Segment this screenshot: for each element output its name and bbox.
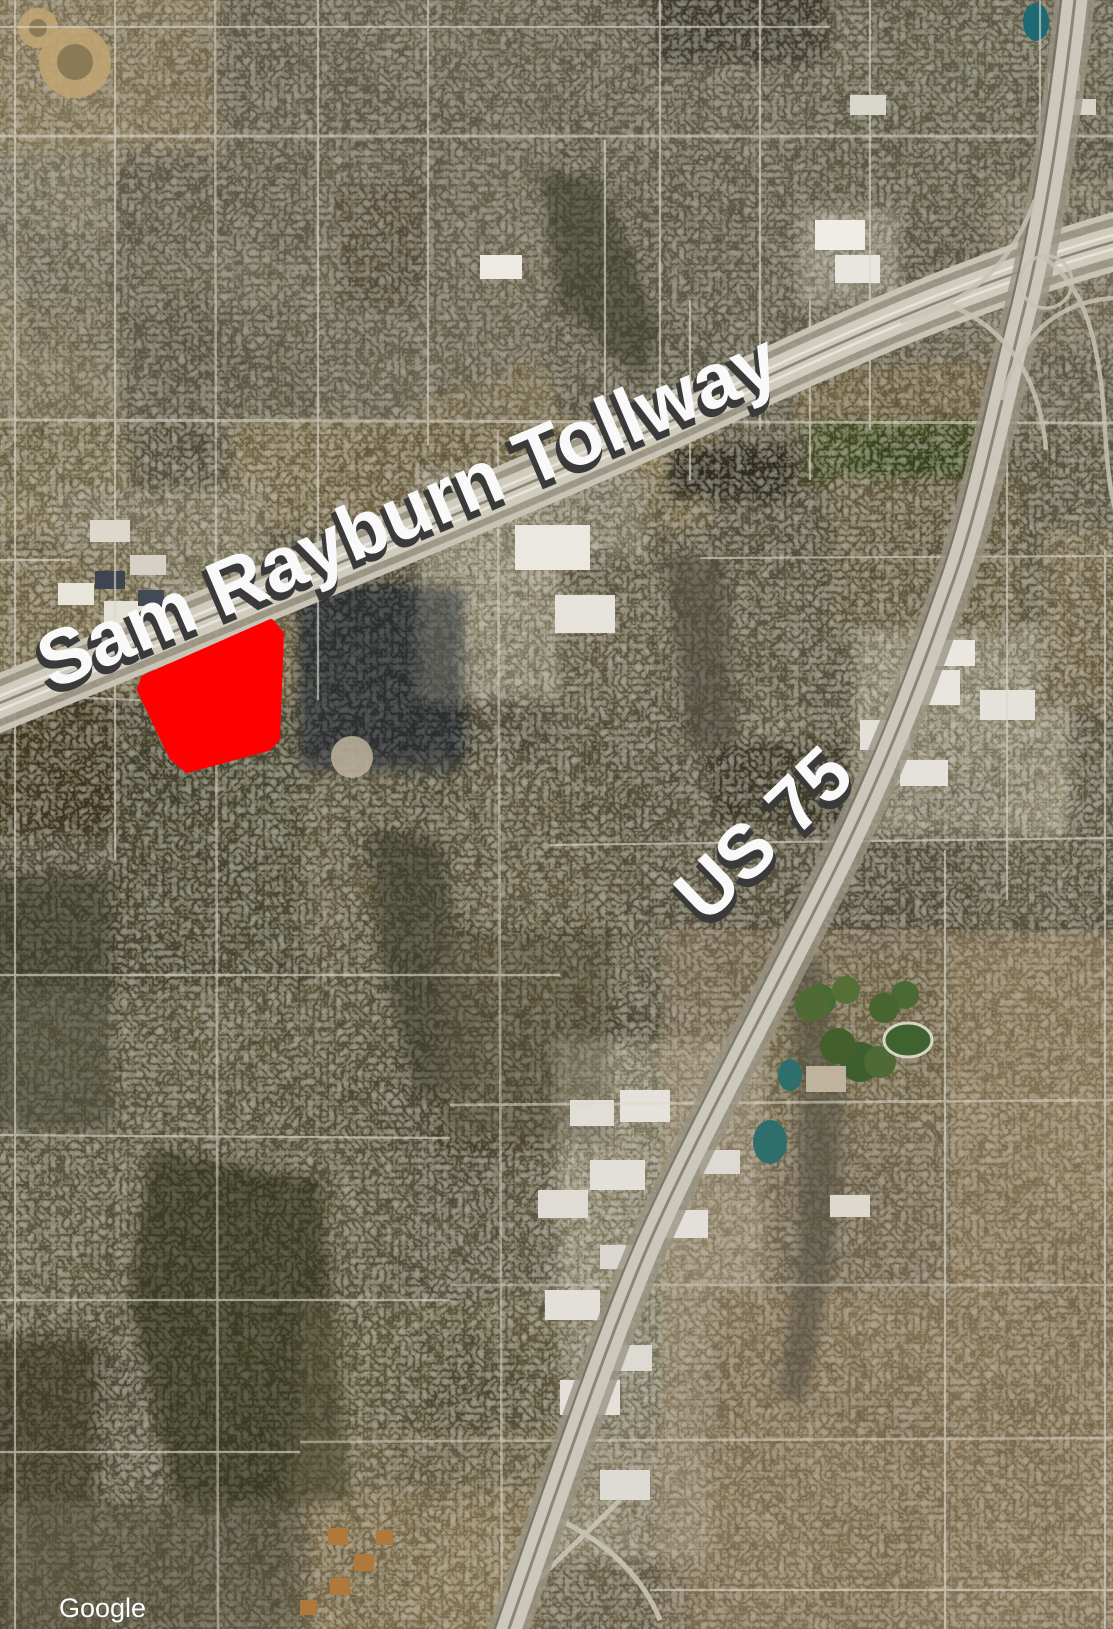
svg-text:Google: Google — [59, 1593, 146, 1623]
